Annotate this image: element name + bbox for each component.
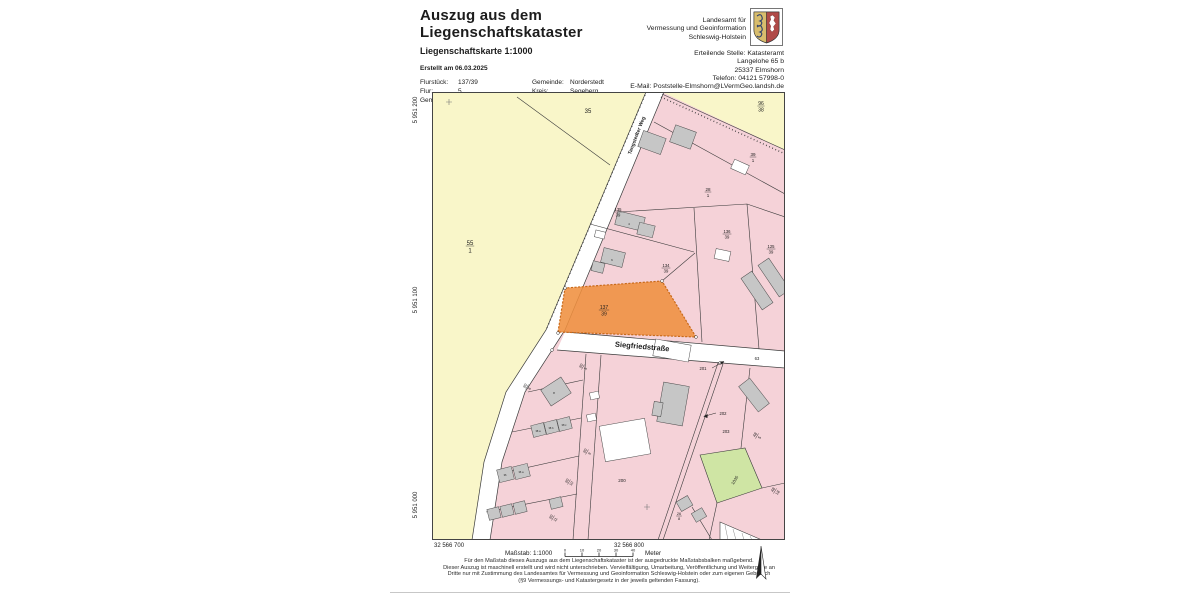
map-label-text: 39	[616, 213, 621, 218]
issuing-office-block: Erteilende Stelle: Katasteramt Langelohe…	[510, 50, 784, 91]
house-number-38c: 38 c	[562, 423, 568, 427]
flurstueck-label: Flurstück:	[420, 79, 458, 88]
northing-label-1: 5 951 200	[413, 90, 419, 130]
map-label-text: 39	[750, 152, 756, 157]
office-line5: E-Mail: Poststelle-Elmshorn@LVermGeo.lan…	[510, 83, 784, 91]
house-number-36a: 36 a	[518, 470, 524, 474]
agency-line2: Vermessung und Geoinformation	[560, 25, 746, 33]
cadastral-map: Tangstedter WegSiegfriedstraße3555196383…	[432, 92, 785, 540]
map-label-text: 26	[677, 512, 681, 516]
north-arrow-icon	[752, 545, 770, 583]
map-label-text: 135	[615, 207, 623, 212]
office-line4: Telefon: 04121 57998-0	[510, 75, 784, 83]
map-label-text: 201	[700, 366, 708, 371]
easting-label-1: 32 566 700	[434, 543, 464, 549]
map-label-text: 136	[724, 229, 732, 234]
legal-line1: Für den Maßstab dieses Auszugs aus dem L…	[430, 558, 788, 565]
scale-tick-0: 0	[564, 548, 567, 553]
parcel-63: 63	[755, 356, 760, 361]
scale-tick-20: 20	[597, 548, 602, 553]
scale-label: Maßstab: 1:1000	[505, 550, 552, 557]
map-label-text: 38	[758, 107, 764, 113]
map-label-text: 35	[585, 109, 592, 115]
house-number-38a: 38 a	[535, 429, 541, 433]
office-line1: Erteilende Stelle: Katasteramt	[510, 50, 784, 58]
scale-tick-10: 10	[580, 548, 585, 553]
flurstueck-value: 137/39	[458, 79, 478, 86]
legal-text: Für den Maßstab dieses Auszugs aus dem L…	[430, 558, 788, 584]
office-line2: Langelohe 65 b	[510, 58, 784, 66]
map-label-text: 38 a	[535, 429, 541, 433]
map-label-text: 134	[663, 263, 671, 268]
map-label-text: 8	[678, 517, 680, 521]
map-label-text: 38 c	[562, 423, 568, 427]
map-label-text: 63	[755, 356, 760, 361]
coat-of-arms-icon	[750, 8, 783, 46]
parcel-96-38: 9638	[757, 101, 764, 114]
map-label-text: 200	[618, 478, 626, 483]
map-label-text: 38 b	[548, 426, 554, 430]
agency-line3: Schleswig-Holstein	[560, 34, 746, 42]
legal-line3: Dritte nur mit Zustimmung des Landesamte…	[430, 571, 788, 578]
parcel-35: 35	[585, 109, 592, 115]
page-bottom-rule	[390, 592, 790, 593]
house-number-38b: 38 b	[548, 426, 554, 430]
parcel-201: 201	[700, 366, 708, 371]
office-line3: 25337 Elmshorn	[510, 67, 784, 75]
northing-label-3: 5 951 000	[413, 485, 419, 525]
map-label-text: 28	[705, 187, 711, 192]
parcel-203: 203	[723, 429, 731, 434]
northing-label-2: 5 951 100	[413, 280, 419, 320]
parcel-202: 202	[720, 411, 728, 416]
scale-tick-40: 40	[631, 548, 636, 553]
legal-line2: Dieser Auszug ist maschinell erstellt un…	[430, 565, 788, 572]
map-label-text: 39	[601, 311, 607, 317]
agency-line1: Landesamt für	[560, 17, 746, 25]
map-label-text: 202	[720, 411, 728, 416]
scale-unit-label: Meter	[645, 550, 661, 557]
agency-name-block: Landesamt für Vermessung und Geoinformat…	[560, 17, 746, 42]
map-label-text: 36 a	[518, 470, 524, 474]
map-label-text: 39	[664, 269, 669, 274]
scale-tick-30: 30	[614, 548, 619, 553]
map-label-text: 125	[768, 244, 776, 249]
map-label-text: 203	[723, 429, 731, 434]
map-label-text: 39	[769, 250, 774, 255]
legal-line4: (§9 Vermessungs- und Katastergesetz in d…	[430, 578, 788, 585]
cadastral-extract-page: Auszug aus dem Liegenschaftskataster Lie…	[0, 0, 1200, 600]
map-label-text: 39	[725, 235, 730, 240]
parcel-200: 200	[618, 478, 626, 483]
